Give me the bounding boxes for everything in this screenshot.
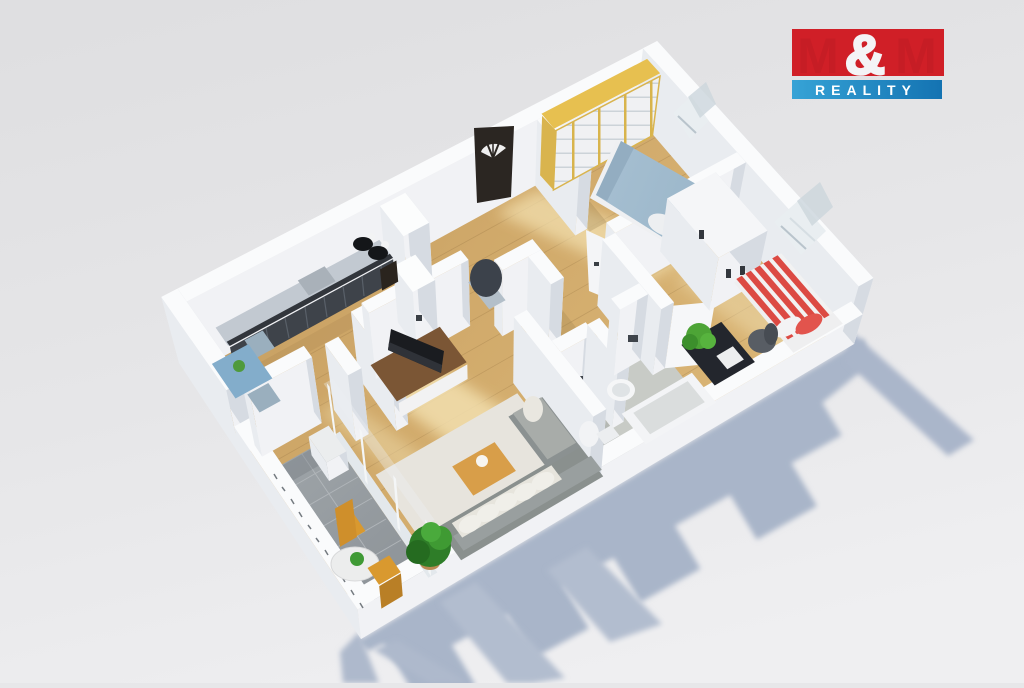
svg-text:M: M [797, 28, 839, 84]
svg-text:&: & [845, 23, 885, 86]
svg-text:REALITY: REALITY [815, 82, 917, 98]
svg-text:M: M [895, 28, 937, 84]
